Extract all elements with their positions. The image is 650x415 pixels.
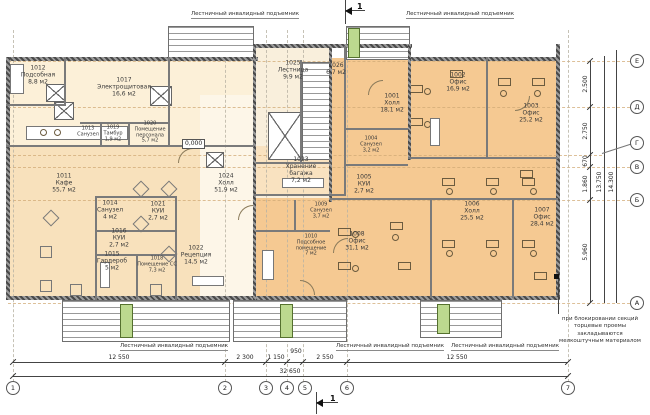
table-icon xyxy=(150,284,162,296)
desk-icon xyxy=(532,78,545,86)
axis-bubble: Б xyxy=(630,193,644,207)
wall xyxy=(6,57,258,61)
table-icon xyxy=(40,246,52,258)
room-area: 28,4 м2 xyxy=(530,221,554,228)
room-label-1002: 1002Офис16,9 м2 xyxy=(446,73,470,94)
room-area: 7,2 м2 xyxy=(274,178,328,185)
room-name: Хранение багажа xyxy=(274,164,328,178)
room-area: 1,9 м2 xyxy=(103,137,122,143)
room-label-1006: 1006Холл25,5 м2 xyxy=(460,202,484,223)
wall xyxy=(95,196,177,198)
section-mark: 1 xyxy=(357,2,363,11)
burner-icon xyxy=(54,129,61,136)
wall xyxy=(430,200,432,298)
wall xyxy=(294,200,296,230)
wall xyxy=(344,128,408,130)
wall xyxy=(175,196,177,300)
room-area: 2,7 м2 xyxy=(354,188,374,195)
room-label-1014: 1014Санузел4 м2 xyxy=(97,201,123,222)
dimension-line xyxy=(590,61,591,303)
room-label-1016: 1016КУИ2,7 м2 xyxy=(109,229,129,250)
room-area: 3,7 м2 xyxy=(310,214,332,220)
room-label-1013: 1013Санузел xyxy=(75,126,101,138)
axis-bubble: 7 xyxy=(561,381,575,395)
level-point-icon xyxy=(206,152,224,168)
room-area: 8,8 м2 xyxy=(21,79,55,86)
dimension-line xyxy=(13,376,568,377)
room-label-1020: 1020Помещение персонала5,7 м2 xyxy=(122,122,178,145)
note-line: торцевые проемы закладываются xyxy=(574,323,626,336)
wall xyxy=(408,44,411,160)
wall xyxy=(330,198,558,200)
room-label-1025: 1025Лестница9,9 м2 xyxy=(278,61,309,82)
floor-plan-canvas: 1012Подсобная8,8 м2 1017Электрощитовая16… xyxy=(0,0,650,415)
wall xyxy=(512,200,514,298)
room-label-1011: 1011Кафе55,7 м2 xyxy=(52,174,76,195)
desk-icon xyxy=(486,240,499,248)
wall xyxy=(64,57,66,105)
wall xyxy=(6,145,254,147)
room-area: 7,3 м2 xyxy=(137,268,177,274)
lift-annotation: Лестничный инвалидный подъемник xyxy=(120,343,228,351)
room-area: 16,9 м2 xyxy=(446,86,470,93)
desk-icon xyxy=(522,240,535,248)
room-area: 6,7 м2 xyxy=(326,70,346,77)
room-area: 51,9 м2 xyxy=(214,187,238,194)
room-label-1007: 1007Офис28,4 м2 xyxy=(530,208,554,229)
axis-bubble: 5 xyxy=(298,381,312,395)
axis-bubble: 6 xyxy=(340,381,354,395)
desk-icon xyxy=(520,170,533,178)
dimension-line xyxy=(616,50,617,303)
chair-icon xyxy=(446,188,453,195)
desk-icon xyxy=(442,178,455,186)
axis-line xyxy=(347,30,348,382)
lift-platform xyxy=(348,28,360,58)
chair-icon xyxy=(534,90,541,97)
table-icon xyxy=(40,280,52,292)
wall xyxy=(6,57,10,300)
room-label-1010: 1010Подсобное помещение7 м2 xyxy=(282,235,340,258)
table-icon xyxy=(70,284,82,296)
room-area: 7 м2 xyxy=(282,252,340,258)
room-label-1005: 1005КУИ2,7 м2 xyxy=(354,175,374,196)
lift-platform xyxy=(437,304,450,334)
room-label-1004: 1004Санузел3,2 м2 xyxy=(360,136,382,153)
axis-bubble: 4 xyxy=(280,381,294,395)
wall xyxy=(408,157,558,159)
room-area: 3,2 м2 xyxy=(360,148,382,154)
dimension-text: 2.500 xyxy=(582,75,589,92)
wall xyxy=(344,164,408,166)
wall xyxy=(486,57,488,157)
desk-icon xyxy=(410,85,423,93)
section-arrow-icon xyxy=(345,7,352,15)
axis-bubble: А xyxy=(630,296,644,310)
lift-annotation: Лестничный инвалидный подъемник xyxy=(191,11,299,19)
room-label-1001: 1001Холл18,1 м2 xyxy=(380,94,404,115)
note-leader-line xyxy=(558,278,559,314)
dimension-text: 1 150 xyxy=(267,354,284,361)
desk-icon xyxy=(442,240,455,248)
chair-icon xyxy=(352,265,359,272)
desk-icon xyxy=(534,272,547,280)
chair-icon xyxy=(490,250,497,257)
dimension-text: 12 550 xyxy=(109,354,130,361)
lift-platform xyxy=(120,304,133,338)
stair-block xyxy=(420,300,502,338)
dimension-text: 670 xyxy=(582,155,589,166)
chair-icon xyxy=(530,250,537,257)
dimension-text: 13.750 xyxy=(596,172,603,193)
room-area: 14,5 м2 xyxy=(181,259,212,266)
room-area: 9,9 м2 xyxy=(278,74,309,81)
chair-icon xyxy=(446,250,453,257)
dimension-text: 950 xyxy=(290,348,301,355)
room-area: 16,6 м2 xyxy=(97,91,151,98)
room-label-1003: 1003Офис25,2 м2 xyxy=(519,104,543,125)
axis-bubble: 3 xyxy=(259,381,273,395)
wall xyxy=(253,44,256,300)
axis-bubble: В xyxy=(630,160,644,174)
chair-icon xyxy=(530,188,537,195)
wall xyxy=(254,194,344,196)
room-label-1009: 1009Санузел3,7 м2 xyxy=(310,202,332,219)
room-label-1008: 1008Офис31,1 м2 xyxy=(345,232,369,253)
desk-icon xyxy=(522,178,535,186)
room-area: 5 м2 xyxy=(97,265,127,272)
desk-icon xyxy=(390,222,403,230)
room-area: 25,2 м2 xyxy=(519,117,543,124)
wall xyxy=(254,44,412,48)
room-label-1021: 1021КУИ2,7 м2 xyxy=(148,202,168,223)
dimension-line xyxy=(604,56,605,303)
chair-icon xyxy=(392,234,399,241)
chair-icon xyxy=(490,188,497,195)
blocking-note: при блокировании секций торцевые проемы … xyxy=(552,316,648,346)
wall xyxy=(95,230,177,232)
lift-annotation: Лестничный инвалидный подъемник xyxy=(451,343,559,351)
room-area: 2,7 м2 xyxy=(148,215,168,222)
section-mark: 1 xyxy=(330,394,336,403)
dimension-text: 14.300 xyxy=(608,172,615,193)
note-line: при блокировании секций xyxy=(562,316,638,322)
reception-desk-icon xyxy=(192,276,224,286)
zone-hall-1024 xyxy=(200,95,254,298)
room-area: 25,5 м2 xyxy=(460,215,484,222)
dimension-text: 12 550 xyxy=(447,354,468,361)
room-label-1023: 1023Хранение багажа7,2 м2 xyxy=(274,157,328,185)
wall xyxy=(408,57,560,61)
axis-bubble: 1 xyxy=(6,381,20,395)
wall xyxy=(6,296,560,300)
lift-platform xyxy=(280,304,293,338)
desk-icon xyxy=(486,178,499,186)
chair-icon xyxy=(500,90,507,97)
axis-bubble: Г xyxy=(630,136,644,150)
sofa-icon xyxy=(430,118,440,146)
lift-annotation: Лестничный инвалидный подъемник xyxy=(406,11,514,19)
chair-icon xyxy=(424,88,431,95)
desk-icon xyxy=(498,78,511,86)
room-label-1026: 10266,7 м2 xyxy=(326,63,346,77)
stair-block xyxy=(62,300,230,342)
wall xyxy=(256,230,330,232)
room-area: 2,7 м2 xyxy=(109,242,129,249)
wall xyxy=(6,104,66,106)
desk-icon xyxy=(410,118,423,126)
desk-icon xyxy=(398,262,411,270)
dimension-text: 1.860 xyxy=(582,175,589,192)
room-area: 5,7 м2 xyxy=(122,139,178,145)
room-label-1017: 1017Электрощитовая16,6 м2 xyxy=(97,78,151,99)
room-label-1022: 1022Рецепция14,5 м2 xyxy=(181,246,212,267)
stair-block xyxy=(168,26,254,60)
dimension-line xyxy=(13,362,568,363)
elevator-shaft-icon xyxy=(268,112,302,160)
section-arrow-icon xyxy=(316,399,323,407)
dimension-text: 2 550 xyxy=(316,354,333,361)
sofa-icon xyxy=(262,250,274,280)
dimension-text: 32 650 xyxy=(280,368,301,375)
room-label-1015: 1015Гардероб5 м2 xyxy=(97,252,127,273)
room-label-1012: 1012Подсобная8,8 м2 xyxy=(21,66,55,87)
room-area: 18,1 м2 xyxy=(380,107,404,114)
room-area: 55,7 м2 xyxy=(52,187,76,194)
room-label-1018: 1018Помещение СС7,3 м2 xyxy=(137,256,177,273)
elevation-mark: 0,000 xyxy=(182,139,205,149)
dimension-text: 2 300 xyxy=(236,354,253,361)
note-line: мелкоштучным материалом xyxy=(559,338,641,344)
room-label-1019: 1019Тамбур1,9 м2 xyxy=(103,125,122,142)
room-label-1024: 1024Холл51,9 м2 xyxy=(214,174,238,195)
appliance-icon xyxy=(46,84,66,102)
desk-icon xyxy=(338,262,351,270)
room-area: 31,1 м2 xyxy=(345,245,369,252)
note-marker xyxy=(554,274,559,279)
room-area: 4 м2 xyxy=(97,214,123,221)
axis-bubble: 2 xyxy=(218,381,232,395)
axis-bubble: Д xyxy=(630,100,644,114)
axis-bubble: Е xyxy=(630,54,644,68)
wall xyxy=(556,44,560,300)
room-name: Санузел xyxy=(75,132,101,138)
dimension-text: 2.750 xyxy=(582,122,589,139)
dimension-text: 5.960 xyxy=(582,243,589,260)
burner-icon xyxy=(40,129,47,136)
lift-annotation: Лестничный инвалидный подъемник xyxy=(336,343,444,351)
